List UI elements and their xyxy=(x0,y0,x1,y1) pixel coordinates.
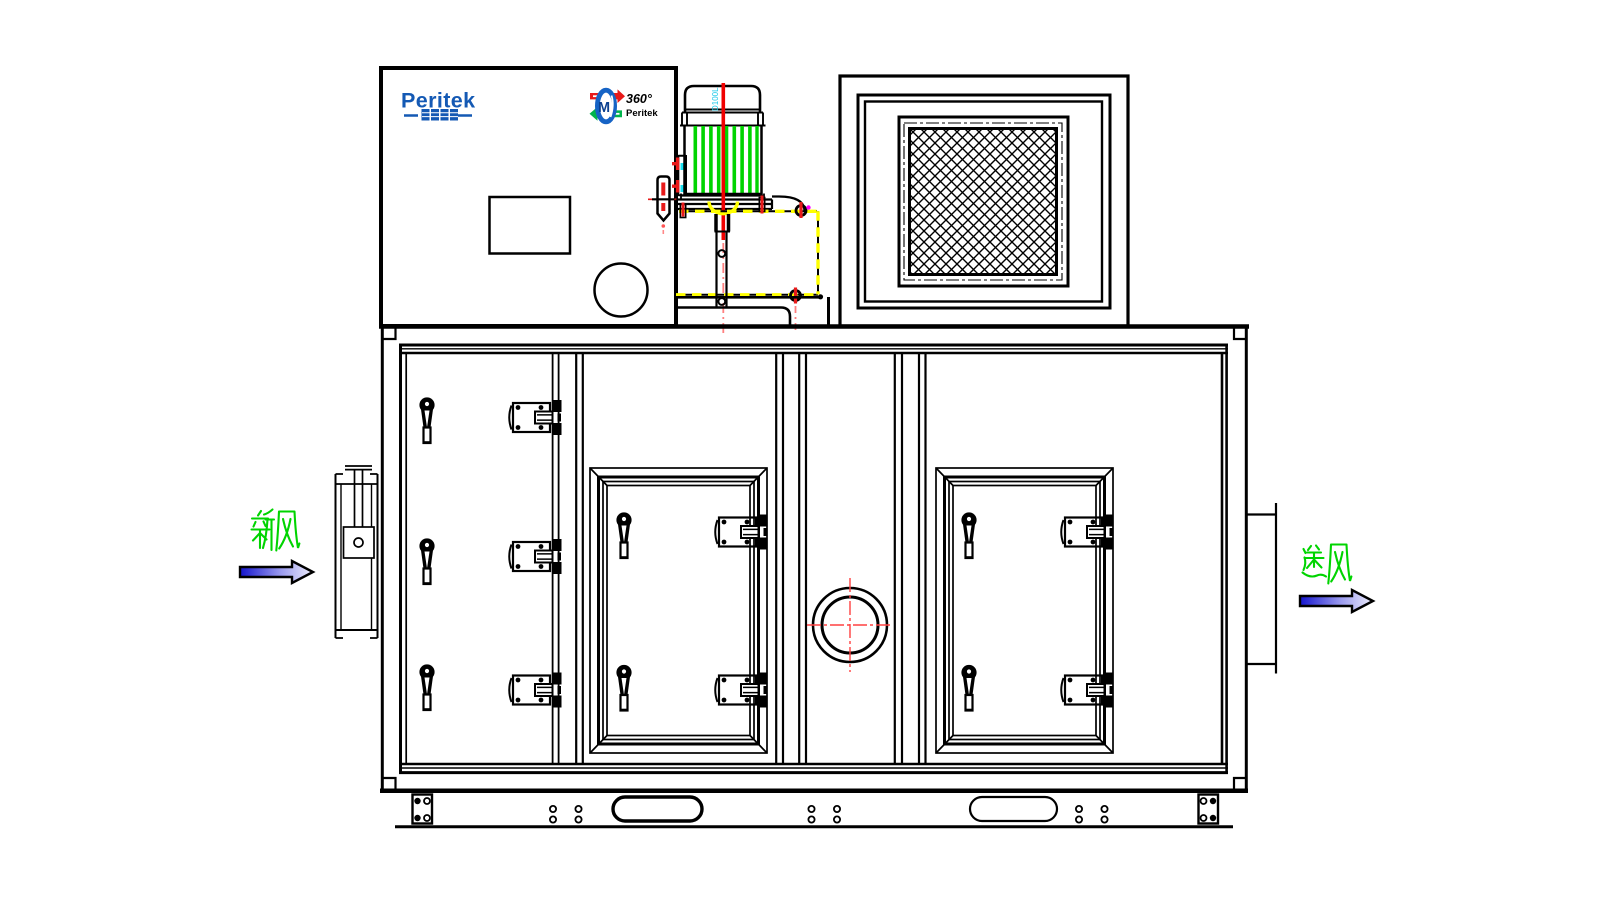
svg-text:Peritek: Peritek xyxy=(626,108,658,119)
svg-text:M: M xyxy=(598,100,610,116)
svg-text:D100L: D100L xyxy=(711,87,720,111)
svg-text:Peritek: Peritek xyxy=(401,89,476,113)
svg-text:360°: 360° xyxy=(626,92,653,106)
